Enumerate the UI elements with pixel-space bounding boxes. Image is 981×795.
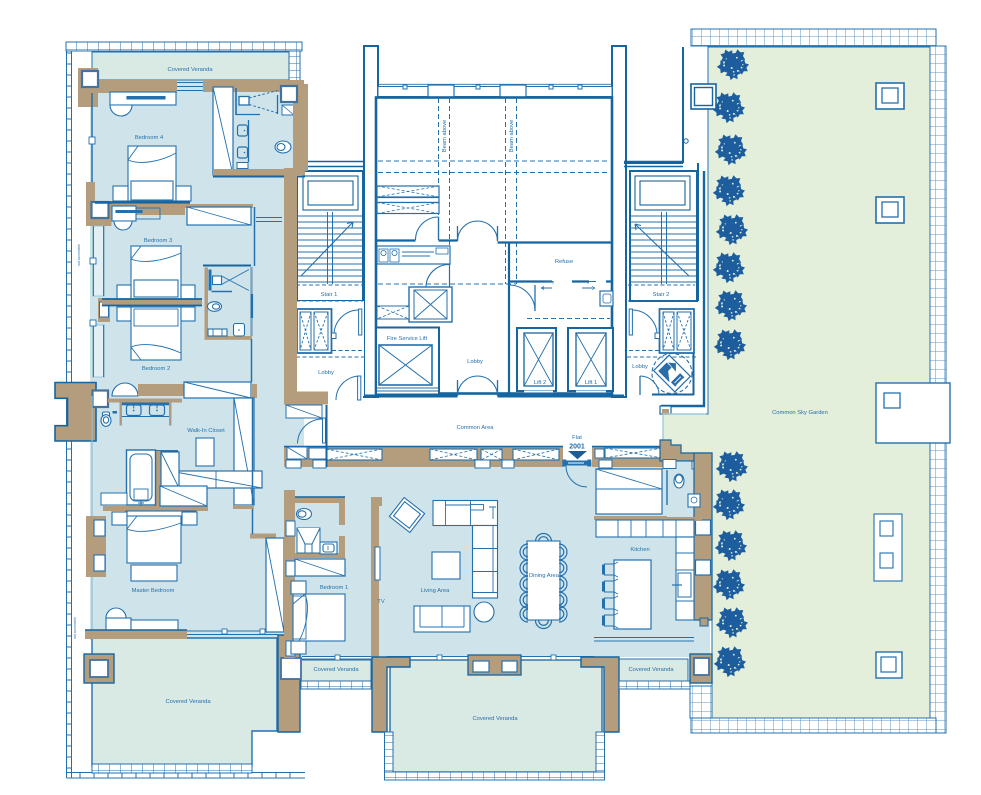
svg-text:Covered Veranda: Covered Veranda xyxy=(165,699,211,705)
svg-text:Bedroom 3: Bedroom 3 xyxy=(144,238,172,244)
svg-text:Beam above: Beam above xyxy=(509,120,515,153)
svg-text:Lobby: Lobby xyxy=(632,364,648,370)
svg-text:Common Area: Common Area xyxy=(456,425,494,431)
svg-text:Lobby: Lobby xyxy=(318,370,334,376)
svg-text:Kitchen: Kitchen xyxy=(630,547,649,553)
svg-text:Master Bedroom: Master Bedroom xyxy=(132,588,175,594)
svg-text:Lift 2: Lift 2 xyxy=(534,380,547,386)
svg-text:Bedroom 4: Bedroom 4 xyxy=(135,135,164,141)
svg-text:Fire Service Lift: Fire Service Lift xyxy=(387,336,428,342)
svg-text:Lift 1: Lift 1 xyxy=(585,380,598,386)
svg-text:Stair 1: Stair 1 xyxy=(321,292,338,298)
svg-text:Lobby: Lobby xyxy=(467,359,483,365)
svg-text:2001: 2001 xyxy=(569,444,585,451)
svg-text:not accessible: not accessible xyxy=(77,244,81,266)
svg-text:Living Area: Living Area xyxy=(421,588,450,594)
svg-text:Flat: Flat xyxy=(572,435,582,441)
svg-text:Covered Veranda: Covered Veranda xyxy=(313,667,359,673)
svg-text:Common Sky Garden: Common Sky Garden xyxy=(772,410,828,416)
svg-text:Stair 2: Stair 2 xyxy=(653,292,670,298)
svg-text:Beam above: Beam above xyxy=(442,120,448,153)
svg-text:not accessible: not accessible xyxy=(73,617,77,639)
svg-text:Covered Veranda: Covered Veranda xyxy=(628,667,674,673)
svg-text:Covered Veranda: Covered Veranda xyxy=(167,67,213,73)
svg-text:Covered Veranda: Covered Veranda xyxy=(472,716,518,722)
svg-text:TV: TV xyxy=(377,599,385,605)
svg-text:Bedroom 1: Bedroom 1 xyxy=(320,585,348,591)
svg-text:Refuse: Refuse xyxy=(555,259,573,265)
svg-text:Walk-In Closet: Walk-In Closet xyxy=(187,428,225,434)
svg-text:Bedroom 2: Bedroom 2 xyxy=(142,366,170,372)
svg-text:Dining Area: Dining Area xyxy=(529,573,560,579)
